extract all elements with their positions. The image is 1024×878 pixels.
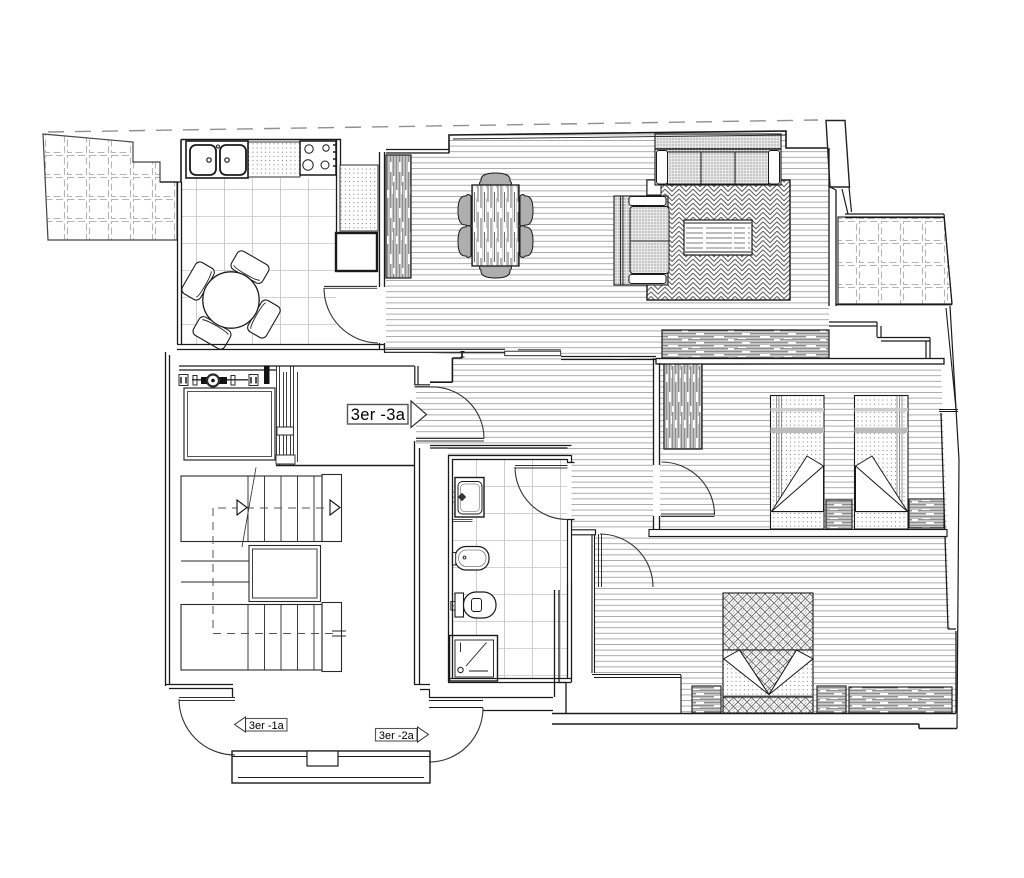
svg-text:3er -2a: 3er -2a bbox=[379, 730, 415, 742]
svg-text:3er -3a: 3er -3a bbox=[351, 406, 406, 424]
svg-text:3er -1a: 3er -1a bbox=[249, 720, 285, 732]
